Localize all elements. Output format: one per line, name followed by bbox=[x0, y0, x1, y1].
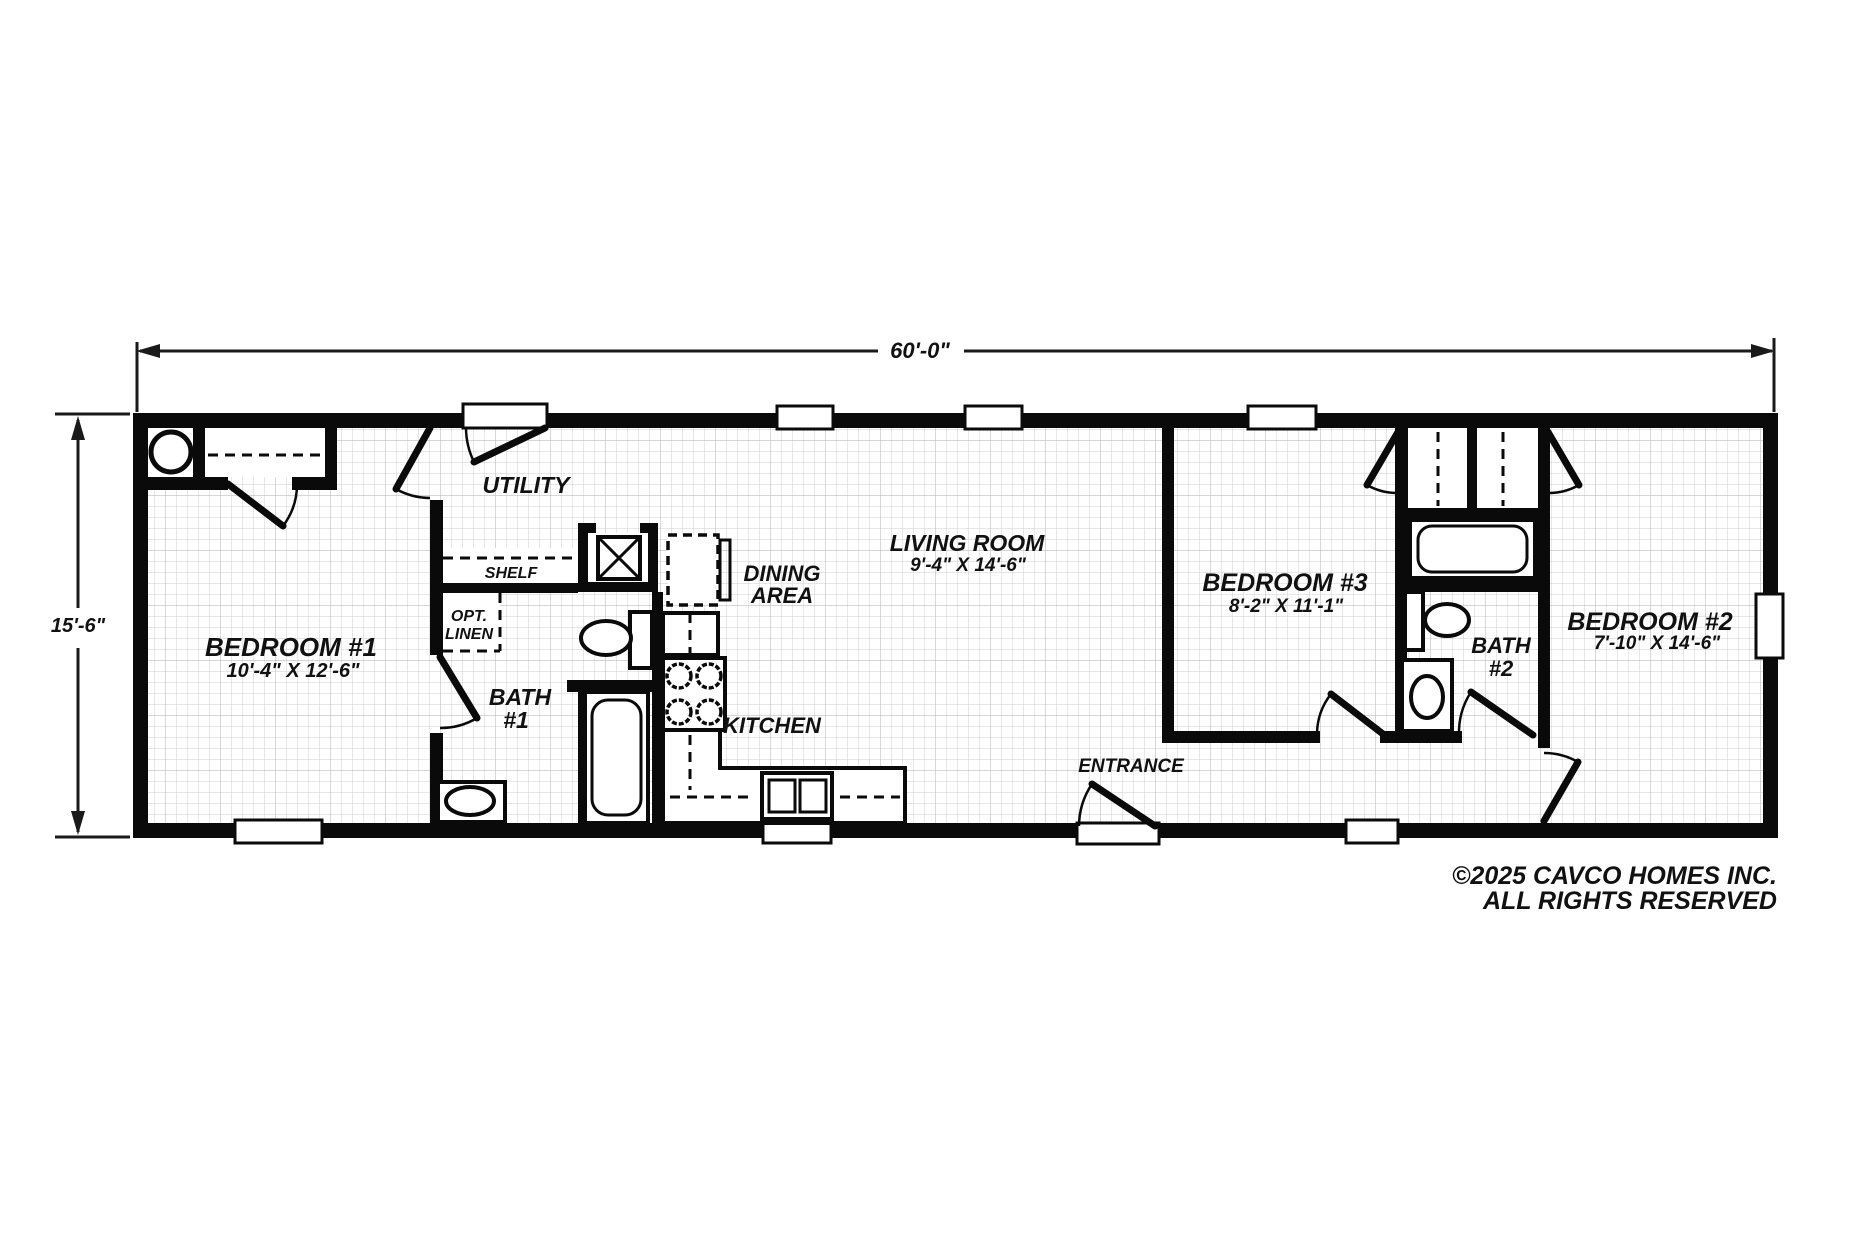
closet-right-area bbox=[1477, 428, 1538, 508]
room-label-bath2-line1: BATH bbox=[1471, 633, 1532, 658]
room-size-bedroom2: 7'-10" X 14'-6" bbox=[1594, 633, 1721, 654]
room-label-kitchen: KITCHEN bbox=[723, 713, 822, 738]
copyright-line2: ALL RIGHTS RESERVED bbox=[1482, 887, 1777, 915]
washer-dryer bbox=[598, 537, 640, 579]
window bbox=[777, 406, 833, 429]
label-shelf: SHELF bbox=[485, 565, 539, 582]
dimension-left: 15'-6" bbox=[51, 414, 130, 837]
bath2-toilet bbox=[1402, 660, 1452, 731]
range-stove bbox=[663, 658, 725, 730]
room-label-bath2-line2: #2 bbox=[1489, 656, 1514, 681]
kitchen-counter-upper bbox=[663, 613, 718, 655]
water-heater bbox=[151, 432, 191, 472]
floorplan-drawing: 60'-0" 15'-6" BEDROOM #1 10'-4" X 12'-6"… bbox=[0, 0, 1850, 1234]
room-label-living: LIVING ROOM bbox=[890, 530, 1045, 556]
room-label-bedroom1: BEDROOM #1 bbox=[205, 632, 377, 662]
room-size-living: 9'-4" X 14'-6" bbox=[910, 555, 1027, 576]
refrigerator bbox=[668, 535, 730, 605]
room-size-bedroom3: 8'-2" X 11'-1" bbox=[1229, 596, 1344, 617]
kitchen-sink bbox=[762, 773, 832, 819]
label-opt-linen-line2: LINEN bbox=[445, 626, 493, 643]
dimension-width-label: 60'-0" bbox=[890, 338, 950, 363]
room-label-bath1-line2: #1 bbox=[503, 707, 529, 733]
window bbox=[235, 820, 322, 843]
dimension-top: 60'-0" bbox=[136, 338, 1775, 412]
window bbox=[1248, 406, 1316, 429]
window bbox=[965, 406, 1022, 429]
bath1-sink bbox=[438, 782, 505, 822]
room-label-bedroom3: BEDROOM #3 bbox=[1202, 569, 1367, 597]
copyright-line1: ©2025 CAVCO HOMES INC. bbox=[1452, 862, 1777, 890]
label-opt-linen-line1: OPT. bbox=[451, 608, 487, 625]
window bbox=[1346, 820, 1398, 843]
floorplan-page: 60'-0" 15'-6" BEDROOM #1 10'-4" X 12'-6"… bbox=[0, 0, 1850, 1234]
room-label-bedroom2: BEDROOM #2 bbox=[1567, 608, 1732, 636]
copyright: ©2025 CAVCO HOMES INC. ALL RIGHTS RESERV… bbox=[1452, 862, 1777, 915]
room-label-utility: UTILITY bbox=[483, 472, 573, 498]
room-label-dining-line2: AREA bbox=[750, 583, 813, 608]
window bbox=[1756, 594, 1783, 658]
bath1-tub bbox=[585, 692, 648, 823]
bath2-tub bbox=[1410, 520, 1535, 578]
room-size-bedroom1: 10'-4" X 12'-6" bbox=[227, 660, 361, 682]
dimension-height-label: 15'-6" bbox=[51, 615, 106, 637]
label-entrance: ENTRANCE bbox=[1078, 756, 1185, 777]
